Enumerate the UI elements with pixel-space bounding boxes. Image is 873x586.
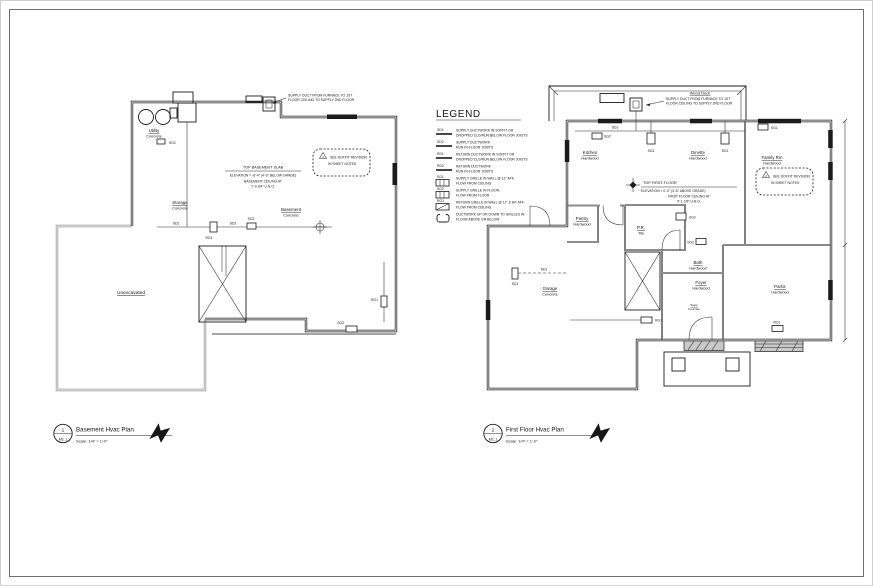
room-label-storage: Storage	[172, 200, 188, 205]
room-floor-kitchen: Hardwood	[581, 157, 598, 161]
supply-note-line1: SUPPLY DUCT FROM FURNACE TO 1ST	[666, 97, 730, 101]
duct-tag: RG1	[774, 321, 781, 325]
stoop-hatch	[684, 341, 724, 351]
elev-note-line4: 9'-1 1/8" U.N.O.	[677, 200, 701, 204]
window-band	[486, 300, 491, 320]
duct-tag: SG2	[337, 321, 344, 325]
plan-scale: Scale: 1/4" = 1'-0"	[76, 439, 108, 444]
room-label-dinette: Dinette	[691, 150, 705, 155]
room-label-kitchen: Kitchen	[583, 150, 598, 155]
duct-tag: SG2	[604, 135, 611, 139]
room-floor-stoop: Concrete	[688, 307, 700, 311]
grille-symbol	[381, 296, 387, 307]
grille-symbol	[157, 139, 165, 144]
room-floor-garage: Concrete	[542, 293, 557, 297]
legend-desc: FLOW FROM CEILING	[456, 205, 492, 209]
room-floor-bath: Hardwood	[689, 267, 706, 271]
supply-note-line2: FLOOR CEILING TO SUPPLY 2ND FLOOR	[288, 98, 355, 102]
legend-desc: DROPPED CLG/RUN BELOW FLOOR JOISTS	[456, 157, 528, 161]
plan-scale: Scale: 1/4" = 1'-0"	[506, 439, 538, 444]
plan-sheet-svg: Utility Concrete Storage Concrete Baseme…	[0, 0, 873, 586]
room-label-pantry: Pantry	[576, 216, 589, 221]
legend-desc: SUPPLY DUCTWORK IN SOFFIT OR	[456, 129, 514, 133]
window-band	[828, 162, 833, 180]
elev-note-line1: TOP FIRST FLOOR	[643, 181, 677, 185]
legend-desc: RUN IN FLOOR JOISTS	[456, 145, 494, 149]
grille-symbol	[758, 124, 768, 130]
deck-label: Wood Deck	[690, 91, 711, 96]
room-floor-dinette: Hardwood	[689, 157, 706, 161]
room-floor-pantry: Hardwood	[573, 223, 590, 227]
room-label-basement: Basement	[281, 207, 302, 212]
duct-tag: SD1	[541, 268, 548, 272]
grille-symbol	[512, 268, 518, 279]
elev-note-line1: TOP BASEMENT SLAB	[243, 166, 284, 170]
revision-line2: IN SHEET NOTES	[328, 162, 357, 166]
legend-tag: SD2	[437, 140, 444, 144]
duct-tag: SD1	[612, 126, 619, 130]
legend-tag: RG1	[437, 199, 444, 203]
duct-tag: SG1	[512, 282, 519, 286]
window-band	[327, 115, 357, 120]
grille-symbol	[247, 223, 256, 229]
elev-note-line4: 7'-9 3/4" U.N.O.	[251, 185, 275, 189]
room-floor-storage: Concrete	[172, 207, 187, 211]
room-floor-utility: Concrete	[146, 135, 161, 139]
grille-symbol	[210, 222, 217, 232]
drawing-sheet: Utility Concrete Storage Concrete Baseme…	[0, 0, 873, 586]
elev-note-line3: BASEMENT CEILING AT	[244, 180, 282, 184]
room-floor-foyer: Hardwood	[692, 287, 709, 291]
room-label-pr: P.R.	[637, 225, 645, 230]
duct-tag: RG1	[206, 236, 213, 240]
room-label-garage: Garage	[543, 286, 558, 291]
plan-title: Basement Hvac Plan	[76, 427, 134, 434]
room-floor-basement: Concrete	[283, 214, 298, 218]
legend-tag: SG2	[437, 187, 444, 191]
room-label-bath: Bath	[693, 260, 703, 265]
callout-sheet: M1.1	[489, 438, 497, 442]
legend-tag: SD1	[437, 128, 444, 132]
duct-tag: SG1	[722, 149, 729, 153]
duct-tag: SG2	[689, 216, 696, 220]
steps-hatch	[755, 341, 803, 352]
grille-symbol	[772, 326, 783, 332]
plan-title: First Floor Hvac Plan	[506, 427, 564, 434]
revision-line2: IN SHEET NOTES	[771, 181, 800, 185]
legend-desc: SUPPLY GRILLE IN FLOOR,	[456, 189, 500, 193]
legend-title: LEGEND	[436, 109, 481, 120]
room-label-family: Family Rm	[762, 155, 783, 160]
grille-symbol	[641, 317, 652, 323]
room-label-foyer: Foyer	[695, 280, 707, 285]
grille-symbol	[592, 133, 602, 139]
window-band	[828, 130, 833, 148]
legend-desc: FLOOR ABOVE OR BELOW	[456, 217, 500, 221]
grille-symbol	[696, 239, 706, 245]
window-band	[565, 140, 570, 162]
legend-desc: FLOW FROM FLOOR	[456, 193, 490, 197]
supply-note-line1: SUPPLY DUCT FROM FURNACE TO 1ST	[288, 94, 352, 98]
legend-desc: RETURN DUCTWORK IN SOFFIT OR	[456, 153, 515, 157]
legend-desc: FLOW FROM CEILING	[456, 181, 492, 185]
room-floor-parlor: Hardwood	[771, 291, 788, 295]
grille-symbol	[346, 326, 357, 332]
room-label-unexcavated: Unexcavated	[117, 290, 145, 296]
legend-return-grille-symbol	[436, 204, 449, 211]
room-floor-pr: Tile	[638, 232, 644, 236]
supply-note-line2: FLOOR CEILING TO SUPPLY 2ND FLOOR	[666, 102, 733, 106]
window-band	[758, 119, 801, 124]
window-band	[828, 280, 833, 300]
callout-number: 1	[62, 428, 65, 434]
legend-desc: RETURN DUCTWORK	[456, 165, 492, 169]
duct-tag: RG1	[371, 298, 378, 302]
window-band	[690, 119, 712, 124]
grille-symbol	[647, 133, 655, 144]
legend-desc: RUN IN FLOOR JOISTS	[456, 169, 494, 173]
room-label-parlor: Parlor	[774, 284, 786, 289]
room-label-utility: Utility	[149, 128, 161, 133]
legend-desc: RETURN GRILLE IN WALL @ 12" & 84" AFF,	[456, 201, 525, 205]
revision-line1: SEE SOFFIT REVISION	[330, 156, 367, 160]
revision-line1: SEE SOFFIT REVISION	[773, 175, 810, 179]
legend-grille-symbol	[436, 180, 449, 187]
duct-tag: SG2	[687, 241, 694, 245]
callout-number: 2	[492, 428, 495, 434]
callout-sheet: M1.1	[59, 438, 67, 442]
legend-tag: SG1	[437, 175, 444, 179]
window-band	[598, 119, 622, 124]
duct-tag: SG1	[771, 126, 778, 130]
window-band	[393, 163, 398, 185]
grille-symbol	[676, 213, 686, 220]
duct-tag: SG2	[169, 141, 176, 145]
legend-desc: DUCTWORK UP OR DOWN TO GRILLES IN	[456, 213, 525, 217]
legend-desc: DROPPED CLG/RUN BELOW FLOOR JOISTS	[456, 133, 528, 137]
legend-grille-symbol	[436, 192, 449, 199]
legend-tag: RD1	[437, 152, 444, 156]
duct-tag: SD1	[173, 222, 180, 226]
legend-tag: RD2	[437, 164, 444, 168]
elev-note-line2: ELEVATION = 0'-0" (4'-6" ABOVE GRADE)	[641, 189, 706, 193]
duct-tag: RG1	[655, 319, 662, 323]
legend-desc: SUPPLY DUCTWORK	[456, 141, 491, 145]
elev-note-line2: ELEVATION = -8'-4" (4'-0" BELOW GRADE)	[230, 174, 296, 178]
elev-note-line3: FIRST FLOOR CEILING AT	[668, 195, 710, 199]
duct-tag: SG1	[648, 149, 655, 153]
legend-desc: SUPPLY GRILLE IN WALL @ 12" AFF,	[456, 177, 514, 181]
grille-symbol	[721, 133, 729, 144]
room-floor-family: Hardwood	[763, 162, 780, 166]
duct-tag: SG2	[248, 217, 255, 221]
duct-tag: SD2	[230, 222, 237, 226]
